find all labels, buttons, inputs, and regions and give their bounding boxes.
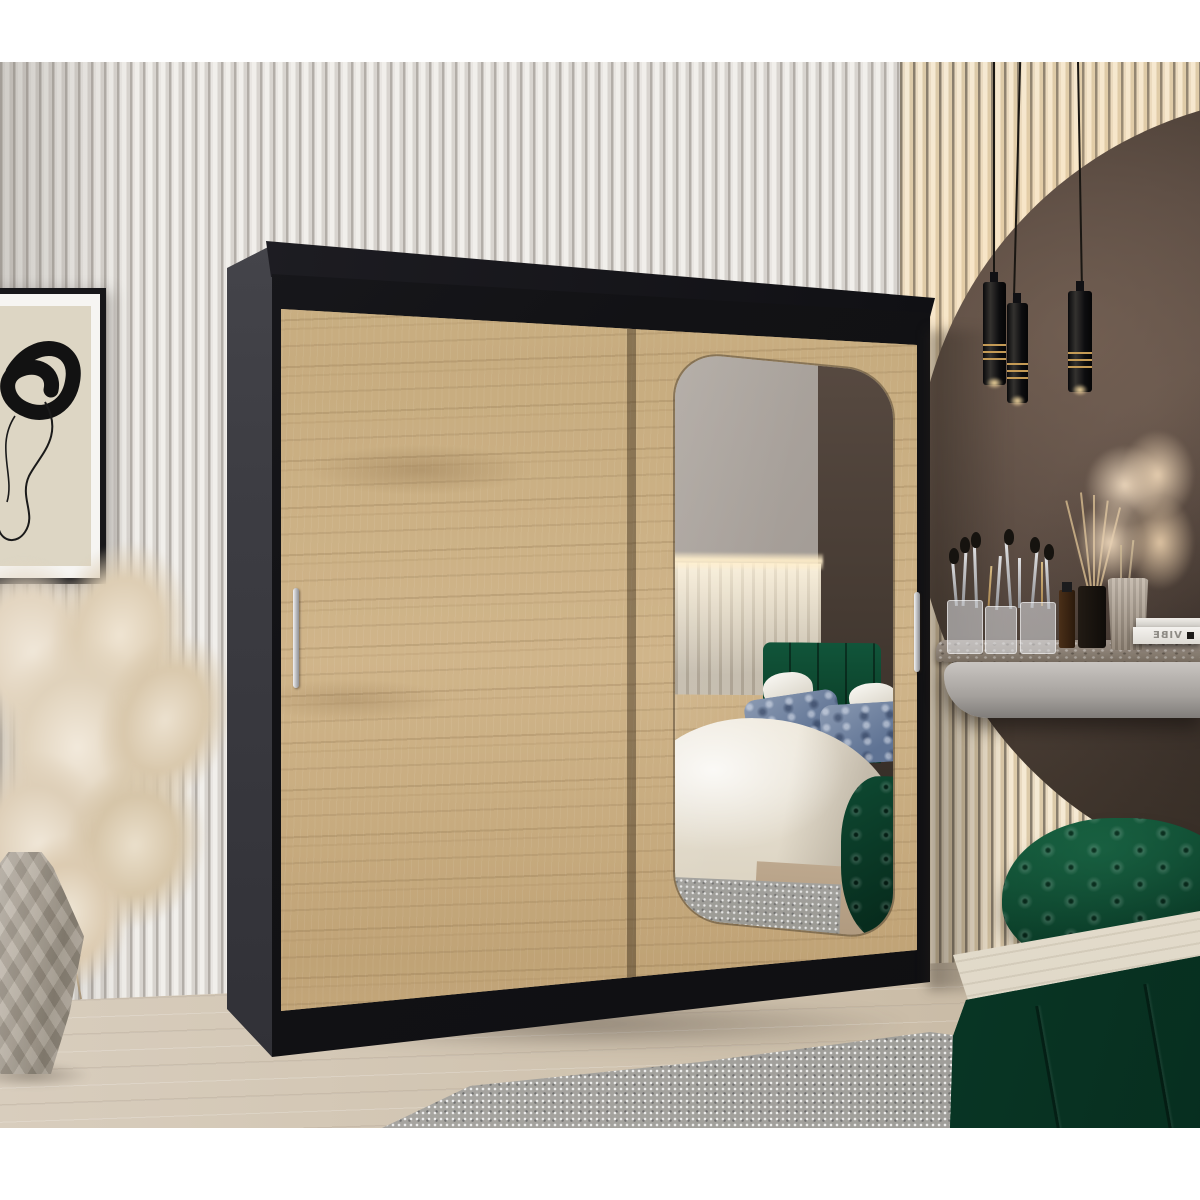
dried-flowers (1125, 495, 1195, 590)
book-spine-label: VIBE (1152, 631, 1182, 641)
brush-tip (1004, 529, 1014, 545)
left-door-handle (293, 588, 299, 688)
brush-tip (1030, 537, 1040, 553)
reed-diffuser-bottle (1078, 586, 1106, 648)
acrylic-holder (985, 606, 1017, 654)
wall-art-canvas (0, 306, 91, 566)
book: VIBE (1133, 627, 1200, 644)
pendant-light (1007, 303, 1028, 403)
book (1136, 618, 1200, 627)
right-door-handle (914, 592, 920, 672)
mirror-glass-sheen (675, 352, 893, 939)
bedroom-product-photo: VIBE (0, 0, 1200, 1200)
pendant-light (1068, 291, 1092, 392)
brush-tip (971, 532, 981, 548)
pendant-light (983, 282, 1006, 385)
wardrobe-mirror (675, 352, 893, 939)
brush-tip (1044, 544, 1054, 560)
brush-tip (960, 537, 970, 553)
acrylic-holder (947, 600, 983, 654)
pendant-wire (993, 62, 995, 282)
acrylic-holder (1020, 602, 1056, 654)
brush-tip (949, 548, 959, 564)
abstract-line-art (0, 306, 91, 566)
perfume-cap (1062, 582, 1072, 592)
perfume-bottle (1059, 590, 1075, 648)
top-white-band (0, 0, 1200, 62)
makeup-brush (1018, 558, 1021, 608)
mirror-reflection (675, 352, 893, 939)
bottom-white-band (0, 1128, 1200, 1200)
vanity-console (944, 662, 1200, 718)
book-logo (1187, 632, 1194, 639)
gold-brush (1041, 562, 1043, 606)
